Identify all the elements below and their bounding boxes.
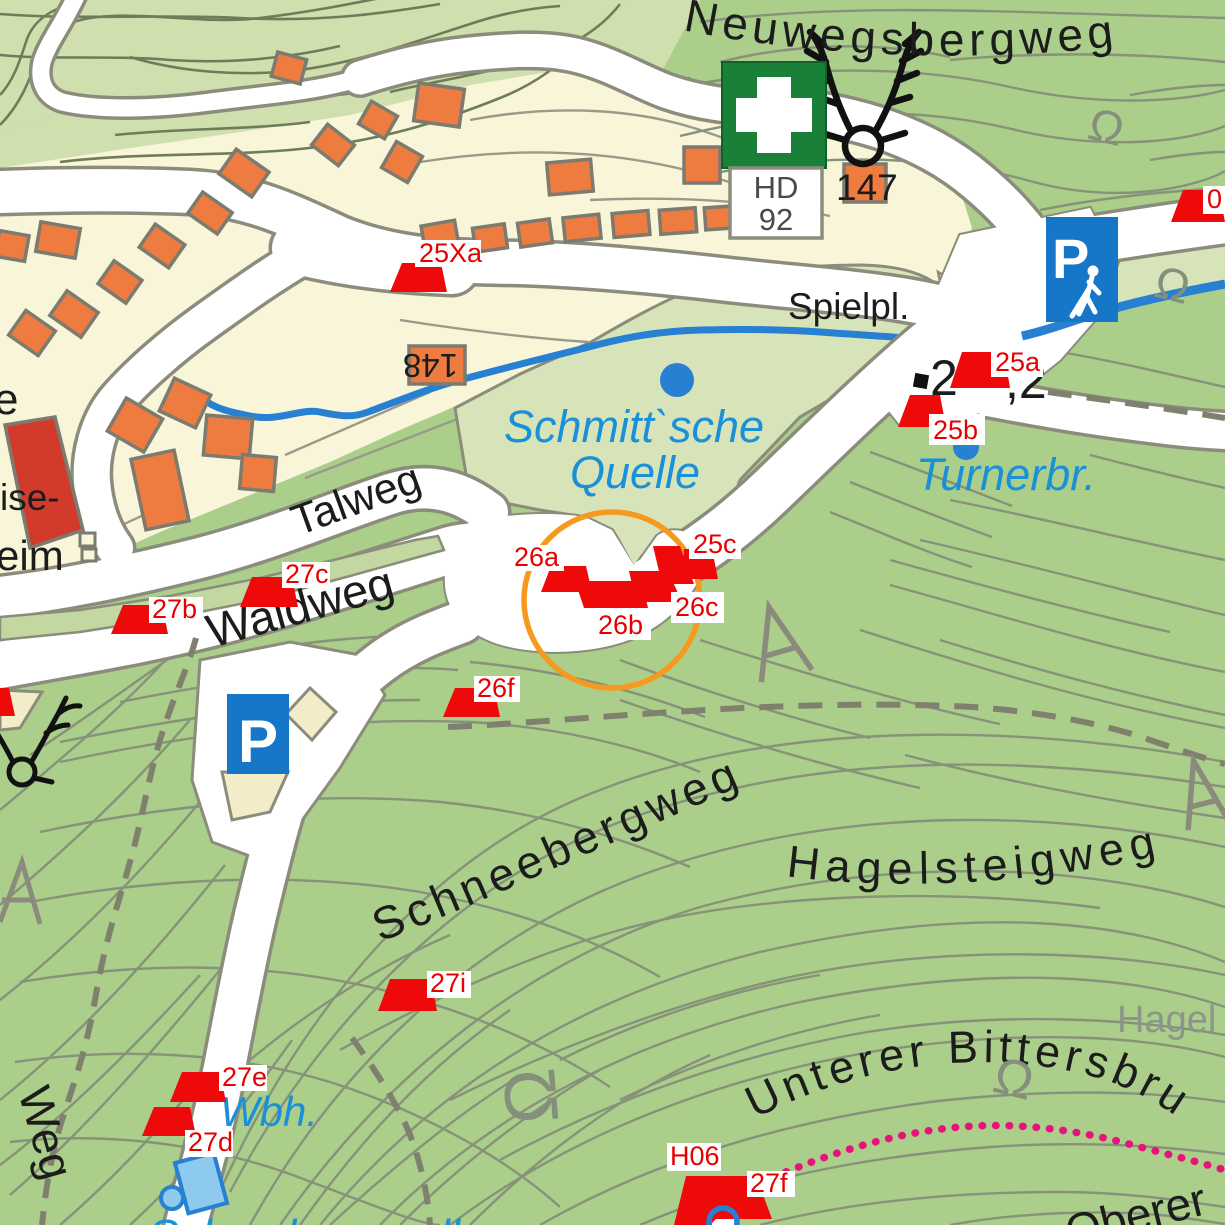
svg-text:e: e (0, 375, 18, 424)
svg-text:eim: eim (0, 532, 64, 579)
svg-text:0: 0 (1207, 184, 1222, 214)
svg-text:Hagel: Hagel (1117, 999, 1216, 1041)
svg-text:Wbh.: Wbh. (220, 1088, 318, 1135)
svg-text:Turnerbr.: Turnerbr. (916, 449, 1096, 500)
svg-text:P: P (238, 708, 278, 775)
svg-text:P: P (1052, 227, 1089, 290)
svg-text:25a: 25a (995, 347, 1041, 377)
svg-text:26f: 26f (477, 673, 515, 703)
svg-text:25b: 25b (933, 415, 978, 445)
svg-text:ise-: ise- (0, 477, 60, 518)
svg-text:26c: 26c (675, 592, 719, 622)
svg-text:Spielpl.: Spielpl. (788, 286, 909, 327)
svg-text:26a: 26a (514, 542, 560, 572)
svg-text:27f: 27f (750, 1168, 788, 1198)
svg-text:25Xa: 25Xa (419, 238, 483, 268)
svg-text:27i: 27i (430, 968, 466, 998)
svg-text:26b: 26b (598, 610, 643, 640)
svg-text:Ω: Ω (487, 1065, 575, 1127)
svg-text:92: 92 (759, 202, 793, 237)
svg-text:148: 148 (403, 347, 458, 384)
svg-text:Schwabenquelle: Schwabenquelle (148, 1210, 486, 1225)
svg-text:27c: 27c (285, 559, 329, 589)
svg-text:H06: H06 (670, 1141, 720, 1171)
svg-text:25c: 25c (693, 529, 737, 559)
svg-text:147: 147 (836, 167, 898, 208)
svg-text:Schmitt`sche: Schmitt`sche (504, 401, 764, 452)
svg-text:HD: HD (754, 170, 799, 205)
svg-text:27e: 27e (222, 1062, 267, 1092)
svg-text:27b: 27b (152, 594, 197, 624)
svg-text:Quelle: Quelle (570, 447, 700, 498)
svg-text:27d: 27d (188, 1127, 233, 1157)
